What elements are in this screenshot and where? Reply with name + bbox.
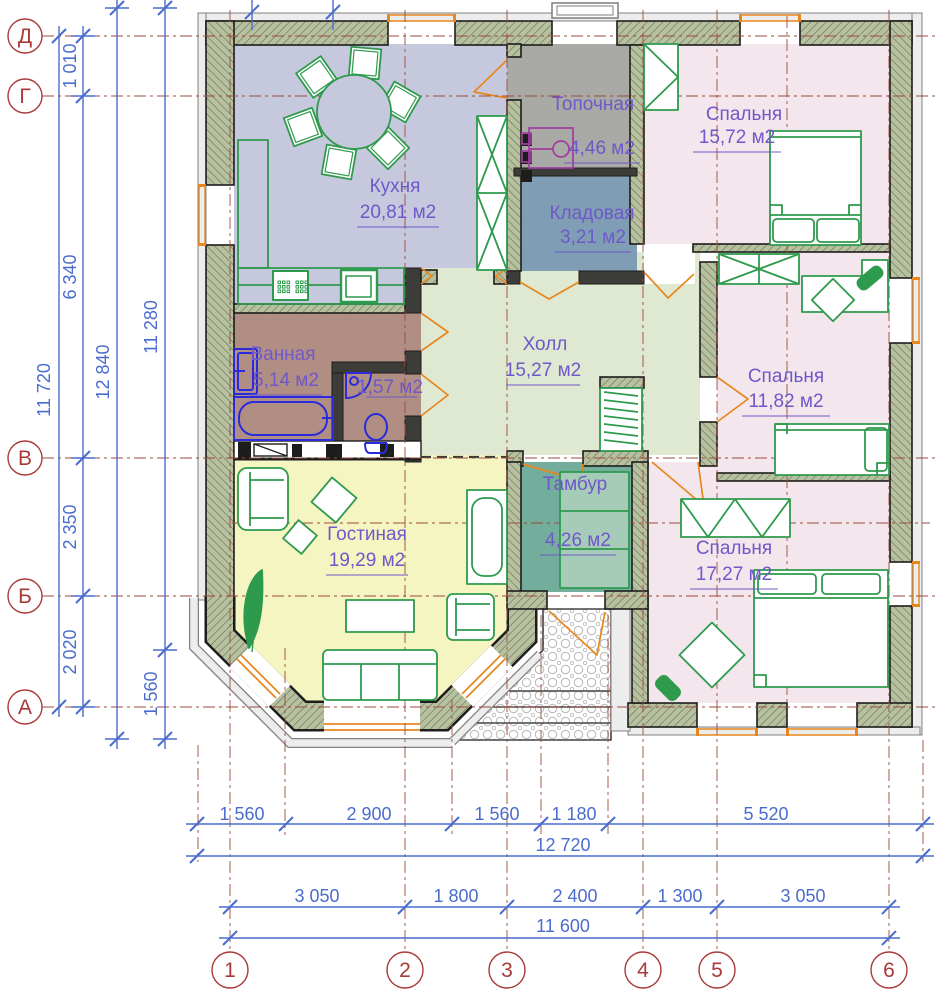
svg-text:Г: Г — [19, 85, 30, 108]
svg-text:Тамбур: Тамбур — [543, 474, 608, 495]
svg-text:2: 2 — [399, 959, 411, 982]
svg-text:1,57 м2: 1,57 м2 — [357, 377, 423, 398]
svg-text:5,14 м2: 5,14 м2 — [253, 370, 319, 391]
svg-text:6 340: 6 340 — [60, 254, 80, 299]
svg-text:4,46 м2: 4,46 м2 — [569, 138, 635, 159]
svg-text:Спальня: Спальня — [748, 366, 824, 387]
svg-text:15,27 м2: 15,27 м2 — [505, 360, 581, 381]
svg-text:2 020: 2 020 — [60, 629, 80, 674]
svg-text:1 560: 1 560 — [141, 671, 161, 716]
svg-text:Б: Б — [18, 585, 32, 608]
svg-text:1 800: 1 800 — [433, 886, 478, 906]
svg-text:Холл: Холл — [523, 334, 568, 355]
svg-text:2 400: 2 400 — [552, 886, 597, 906]
svg-text:Кладовая: Кладовая — [549, 203, 634, 224]
svg-text:Д: Д — [18, 25, 32, 48]
svg-text:В: В — [18, 447, 32, 470]
svg-text:2 350: 2 350 — [60, 504, 80, 549]
svg-text:3,21 м2: 3,21 м2 — [560, 227, 626, 248]
svg-text:12 720: 12 720 — [535, 835, 590, 855]
svg-text:2 900: 2 900 — [346, 804, 391, 824]
svg-text:5 520: 5 520 — [743, 804, 788, 824]
svg-text:Топочная: Топочная — [552, 94, 634, 115]
svg-text:15,72 м2: 15,72 м2 — [699, 127, 775, 148]
svg-text:1: 1 — [224, 959, 236, 982]
svg-text:4,26 м2: 4,26 м2 — [545, 530, 611, 551]
svg-text:Кухня: Кухня — [370, 176, 421, 197]
svg-text:1 010: 1 010 — [60, 43, 80, 88]
svg-text:12 840: 12 840 — [93, 344, 113, 399]
svg-text:11 600: 11 600 — [536, 916, 590, 936]
svg-text:20,81 м2: 20,81 м2 — [360, 202, 436, 223]
svg-text:1 180: 1 180 — [551, 804, 596, 824]
svg-text:Спальня: Спальня — [706, 104, 782, 125]
svg-text:1 560: 1 560 — [219, 804, 264, 824]
svg-text:1 300: 1 300 — [657, 886, 702, 906]
svg-text:Ванная: Ванная — [250, 344, 315, 365]
svg-text:3: 3 — [501, 959, 513, 982]
svg-text:5: 5 — [711, 959, 723, 982]
svg-text:А: А — [18, 696, 32, 719]
svg-text:3 050: 3 050 — [780, 886, 825, 906]
svg-text:11,82 м2: 11,82 м2 — [748, 391, 823, 412]
svg-text:11 280: 11 280 — [141, 300, 161, 354]
svg-text:11 720: 11 720 — [34, 363, 54, 417]
svg-text:17,27 м2: 17,27 м2 — [696, 564, 772, 585]
svg-text:6: 6 — [883, 959, 895, 982]
svg-text:1 560: 1 560 — [474, 804, 519, 824]
svg-text:4: 4 — [637, 959, 649, 982]
svg-text:19,29 м2: 19,29 м2 — [329, 550, 405, 571]
svg-text:3 050: 3 050 — [294, 886, 339, 906]
svg-text:Спальня: Спальня — [696, 538, 772, 559]
svg-text:Гостиная: Гостиная — [327, 524, 407, 545]
